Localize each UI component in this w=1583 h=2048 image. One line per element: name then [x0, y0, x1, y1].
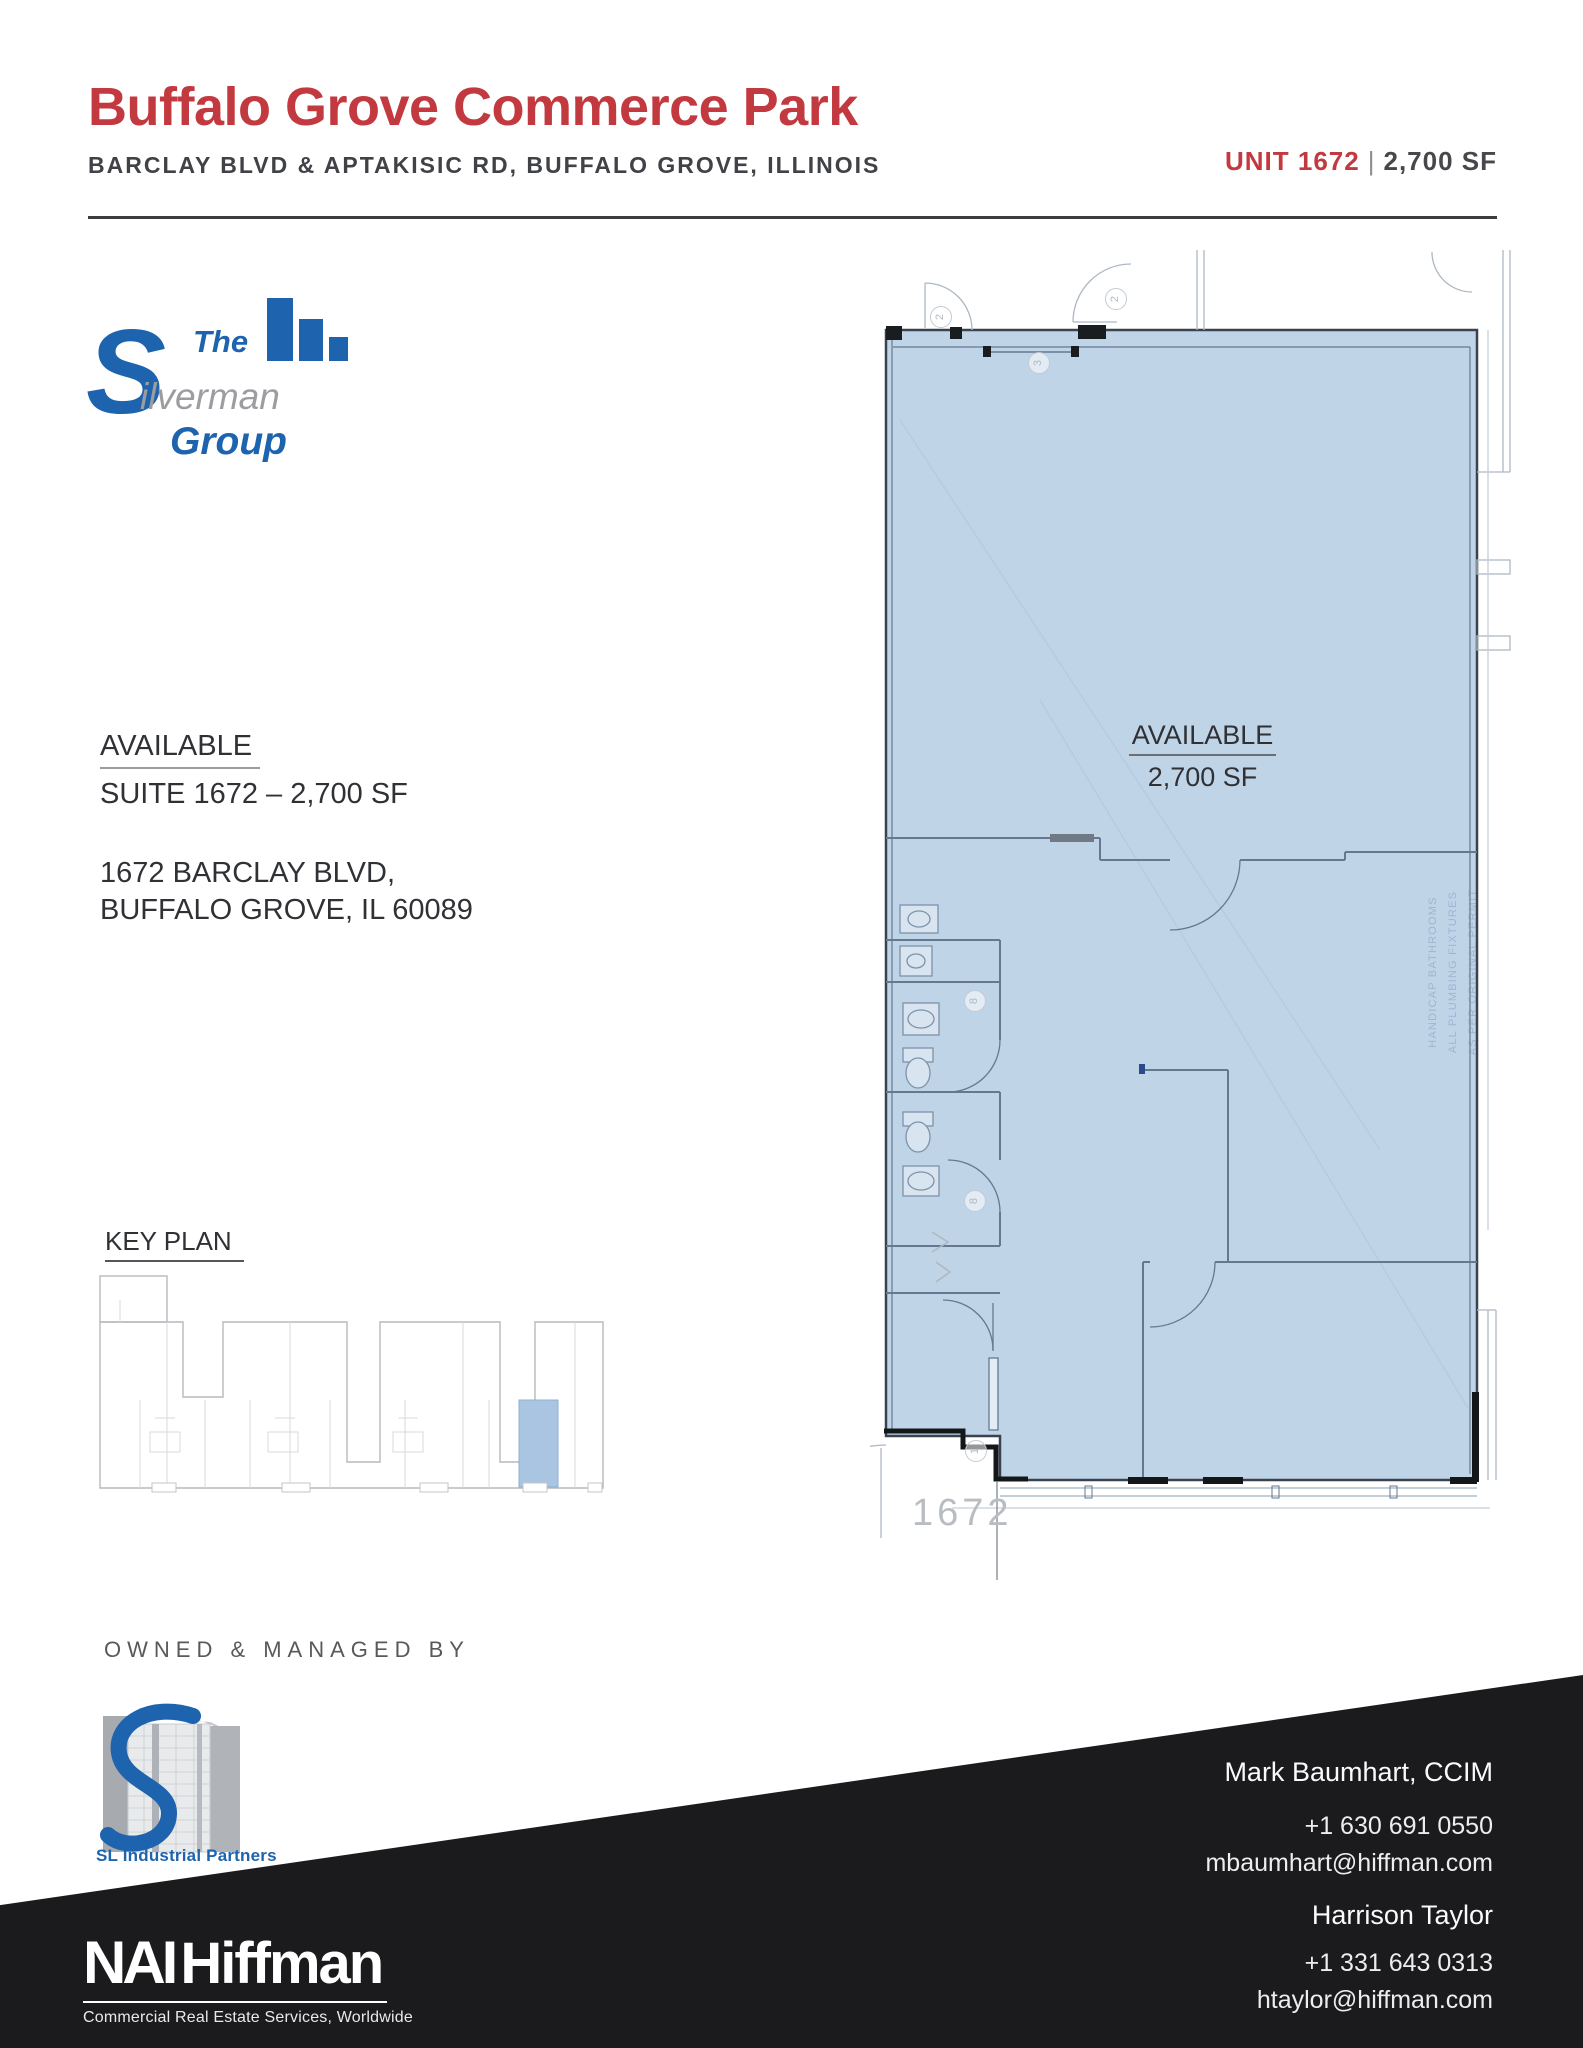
availability-suite-line: SUITE 1672 – 2,700 SF — [100, 776, 473, 813]
plan-size-text: 2,700 SF — [1095, 762, 1310, 793]
property-address-subtitle: BARCLAY BLVD & APTAKISIC RD, BUFFALO GRO… — [88, 152, 880, 179]
nai-hiffman-logo: NAIHiffman Commercial Real Estate Servic… — [83, 1928, 413, 2027]
nai-logo-rule — [83, 2001, 387, 2003]
contact-phone: +1 331 643 0313 — [1257, 1949, 1493, 1978]
silverman-group-logo: S The ilverman Group — [90, 296, 370, 481]
unit-label: UNIT 1672 — [1225, 146, 1360, 176]
availability-address-line2: BUFFALO GROVE, IL 60089 — [100, 892, 473, 929]
availability-address-line1: 1672 BARCLAY BLVD, — [100, 855, 473, 892]
hiffman-logo-word: Hiffman — [180, 1931, 382, 1996]
contact-name: Mark Baumhart, CCIM — [1205, 1757, 1493, 1788]
contact-card: Harrison Taylor +1 331 643 0313 htaylor@… — [1257, 1900, 1493, 2015]
silverman-word-the: The — [193, 324, 248, 360]
plan-side-note-line: AS PER ORIGINAL PERMIT — [1463, 807, 1483, 1137]
nai-logo-tagline: Commercial Real Estate Services, Worldwi… — [83, 2009, 413, 2027]
size-label: 2,700 SF — [1383, 146, 1497, 176]
nai-logo-word: NAI — [83, 1929, 174, 1996]
key-plan-heading: KEY PLAN — [105, 1226, 244, 1262]
plan-availability-label: AVAILABLE 2,700 SF — [1095, 720, 1310, 793]
bath-number-badge: 8 — [964, 990, 986, 1012]
flyer-page: Buffalo Grove Commerce Park BARCLAY BLVD… — [0, 0, 1583, 2048]
sl-industrial-logo — [90, 1698, 280, 1858]
availability-heading: AVAILABLE — [100, 728, 260, 769]
storefront-number-badge: 3 — [1028, 352, 1050, 374]
key-plan-drawing — [90, 1262, 710, 1498]
wall-fill-segment — [1050, 834, 1094, 842]
owned-managed-heading: OWNED & MANAGED BY — [104, 1637, 470, 1663]
contact-card: Mark Baumhart, CCIM +1 630 691 0550 mbau… — [1205, 1757, 1493, 1878]
silverman-word-group: Group — [170, 420, 287, 464]
silverman-bar-icon — [267, 298, 293, 361]
bath-number-badge: 8 — [964, 1190, 986, 1212]
plan-unit-number: 1672 — [912, 1492, 1013, 1535]
header-divider-rule — [88, 216, 1497, 219]
unit-size-line: UNIT 1672|2,700 SF — [1225, 146, 1497, 177]
silverman-bar-icon — [329, 337, 348, 361]
door-number-badge: 2 — [930, 306, 952, 328]
plan-side-note: HANDICAP BATHROOMS ALL PLUMBING FIXTURES… — [1423, 807, 1487, 1137]
silverman-bar-icon — [299, 319, 323, 361]
unit-size-separator: | — [1360, 146, 1384, 176]
suite-highlight-area — [886, 330, 1477, 1480]
plan-available-text: AVAILABLE — [1129, 720, 1277, 756]
door-number-badge: 2 — [1105, 288, 1127, 310]
silverman-word-ilverman: ilverman — [140, 376, 280, 418]
contact-name: Harrison Taylor — [1257, 1900, 1493, 1931]
contact-email[interactable]: htaylor@hiffman.com — [1257, 1986, 1493, 2015]
entry-number-badge: 1 — [965, 1440, 987, 1462]
key-plan-highlight-unit — [519, 1400, 558, 1487]
contact-phone: +1 630 691 0550 — [1205, 1812, 1493, 1841]
plan-side-note-line: ALL PLUMBING FIXTURES — [1443, 807, 1463, 1137]
plan-side-note-line: HANDICAP BATHROOMS — [1423, 807, 1443, 1137]
plan-blue-tick — [1139, 1064, 1145, 1074]
page-title: Buffalo Grove Commerce Park — [88, 76, 858, 138]
contact-email[interactable]: mbaumhart@hiffman.com — [1205, 1849, 1493, 1878]
sl-industrial-logo-text: SL Industrial Partners — [96, 1846, 277, 1866]
availability-block: AVAILABLE SUITE 1672 – 2,700 SF 1672 BAR… — [100, 728, 473, 929]
